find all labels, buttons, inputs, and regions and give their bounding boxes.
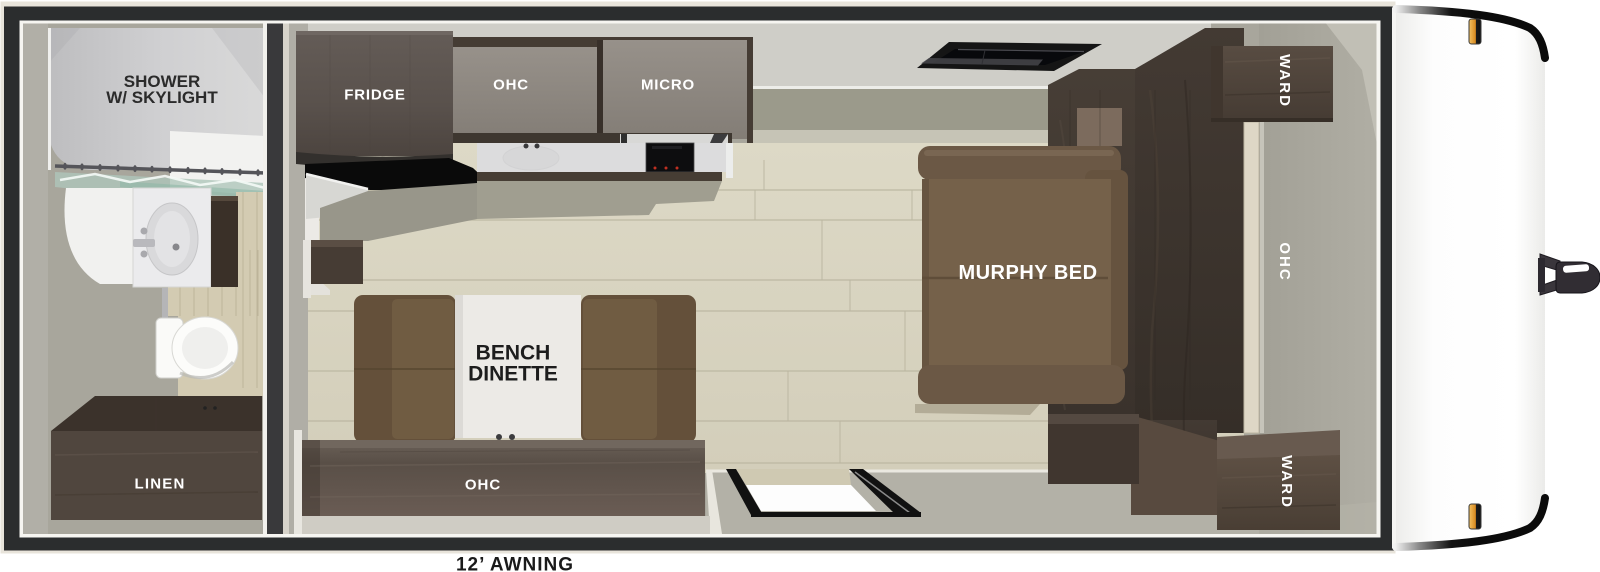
svg-text:WARD: WARD [1278,455,1295,509]
svg-text:LINEN: LINEN [135,475,186,492]
svg-text:W/ SKYLIGHT: W/ SKYLIGHT [106,88,218,107]
svg-text:MURPHY BED: MURPHY BED [958,262,1097,284]
svg-text:FRIDGE: FRIDGE [344,86,405,103]
svg-text:OHC: OHC [1276,242,1293,281]
svg-text:MICRO: MICRO [641,76,695,93]
svg-text:OHC: OHC [493,76,529,93]
svg-text:WARD: WARD [1276,54,1293,108]
svg-text:12’ AWNING: 12’ AWNING [456,555,574,572]
svg-text:BENCH: BENCH [476,341,551,364]
svg-text:OHC: OHC [465,476,501,493]
svg-text:DINETTE: DINETTE [468,362,558,385]
